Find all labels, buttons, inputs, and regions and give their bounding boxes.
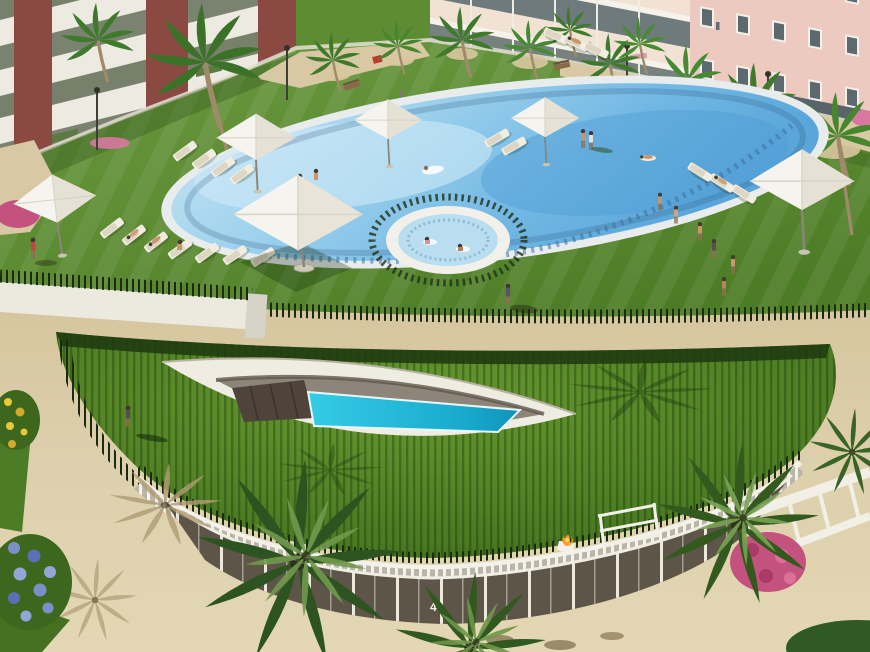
spa-water	[398, 214, 498, 266]
walker-shadow	[35, 260, 57, 266]
people-shadows	[544, 640, 576, 650]
resort-aerial-render: 4	[0, 0, 870, 652]
sunbather-on-grass	[640, 155, 653, 159]
people-shadows	[600, 632, 624, 640]
sitting-person-body	[177, 244, 182, 250]
sitting-person	[178, 240, 182, 244]
